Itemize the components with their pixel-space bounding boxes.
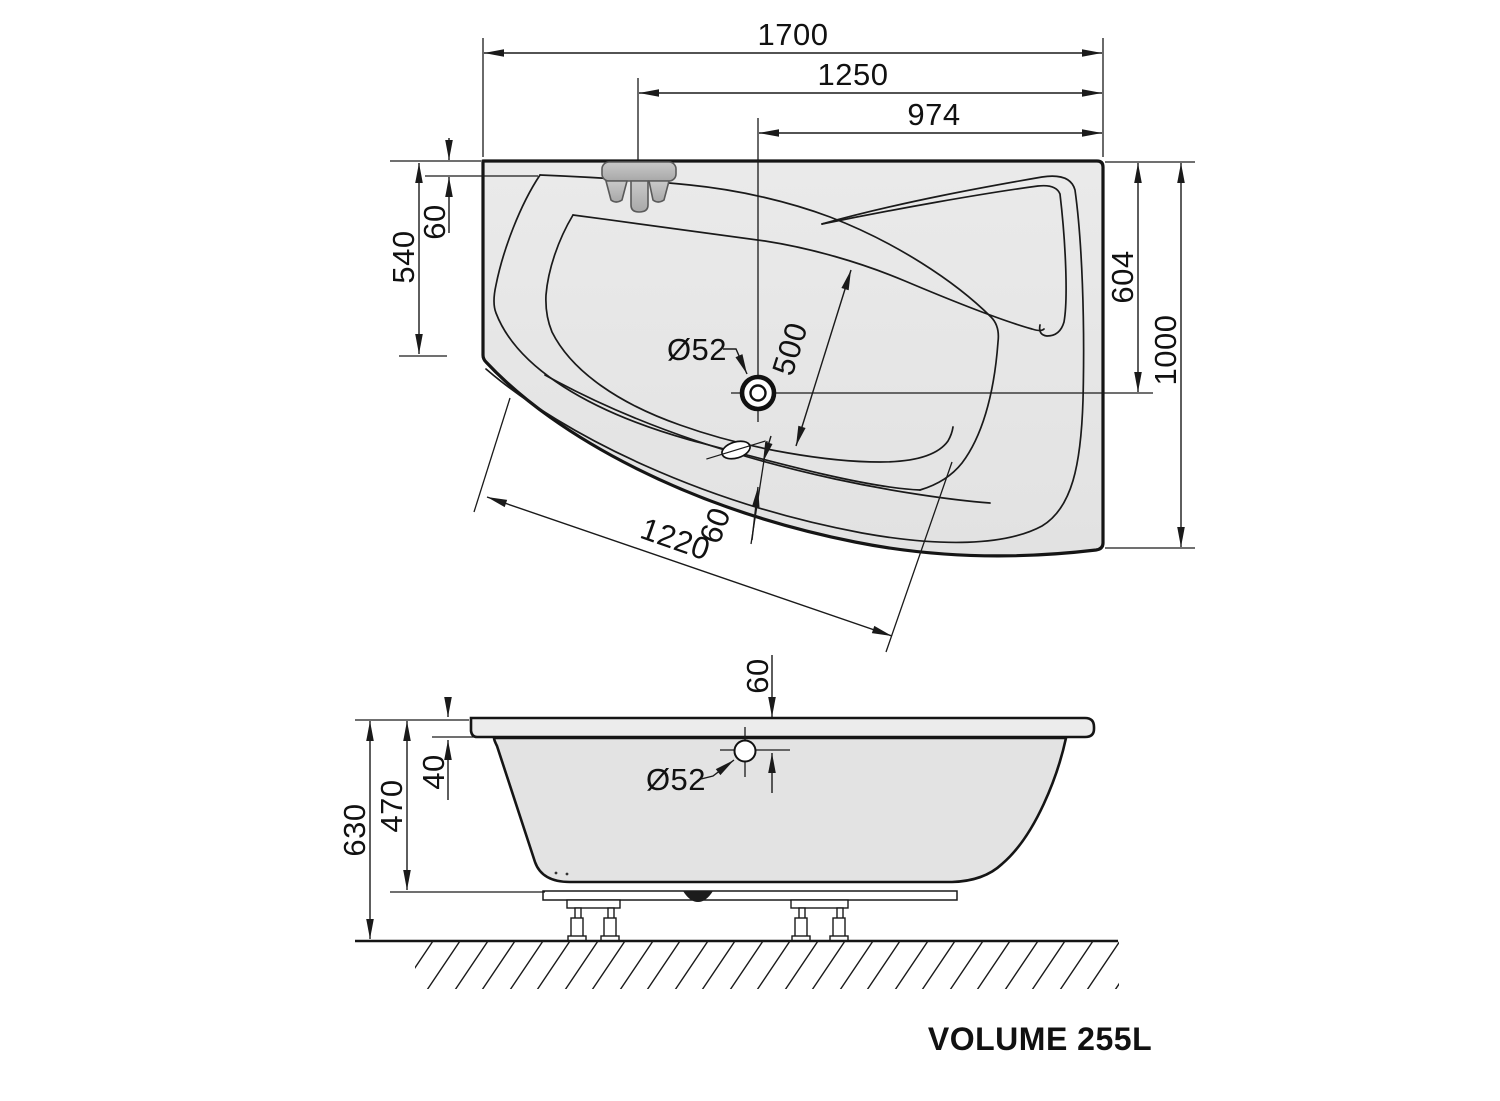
dim-label-974: 974 (907, 97, 960, 132)
bathtub-dimension-drawing: 1700 1250 974 540 60 604 1000 Ø52 (0, 0, 1500, 1101)
dim-label-540: 540 (386, 230, 421, 283)
dim-label-drain-diameter: Ø52 (667, 332, 727, 367)
rim-side (471, 718, 1094, 737)
foot-bracket-right (791, 900, 848, 908)
faucet-bar (602, 162, 676, 181)
foot-bracket-left (567, 900, 620, 908)
feet (567, 900, 848, 941)
dim-label-1000: 1000 (1148, 315, 1183, 386)
tub-body-side (494, 738, 1066, 882)
dim-label-60-rim-offset: 60 (417, 204, 452, 239)
dim-label-overflow-diameter: Ø52 (646, 762, 706, 797)
foot-leg (601, 908, 619, 941)
dim-label-40: 40 (416, 754, 451, 789)
dim-label-470: 470 (374, 779, 409, 832)
dim-label-1250: 1250 (818, 57, 889, 92)
foot-leg (830, 908, 848, 941)
dim-label-630: 630 (337, 803, 372, 856)
side-view: 630 470 40 60 Ø52 (337, 655, 1148, 990)
drain-inner-ring (751, 386, 766, 401)
foot-leg (568, 908, 586, 941)
volume-note: VOLUME 255L (928, 1021, 1152, 1057)
dim-label-604: 604 (1105, 250, 1140, 303)
dim-label-60-side: 60 (740, 658, 775, 693)
dim-label-1700: 1700 (758, 17, 829, 52)
faucet-spout (631, 181, 648, 212)
base-plate (543, 891, 957, 900)
top-view: 1700 1250 974 540 60 604 1000 Ø52 (386, 17, 1195, 652)
technical-drawing-page: 1700 1250 974 540 60 604 1000 Ø52 (0, 0, 1500, 1101)
ground-hatching (400, 941, 1148, 990)
foot-leg (792, 908, 810, 941)
